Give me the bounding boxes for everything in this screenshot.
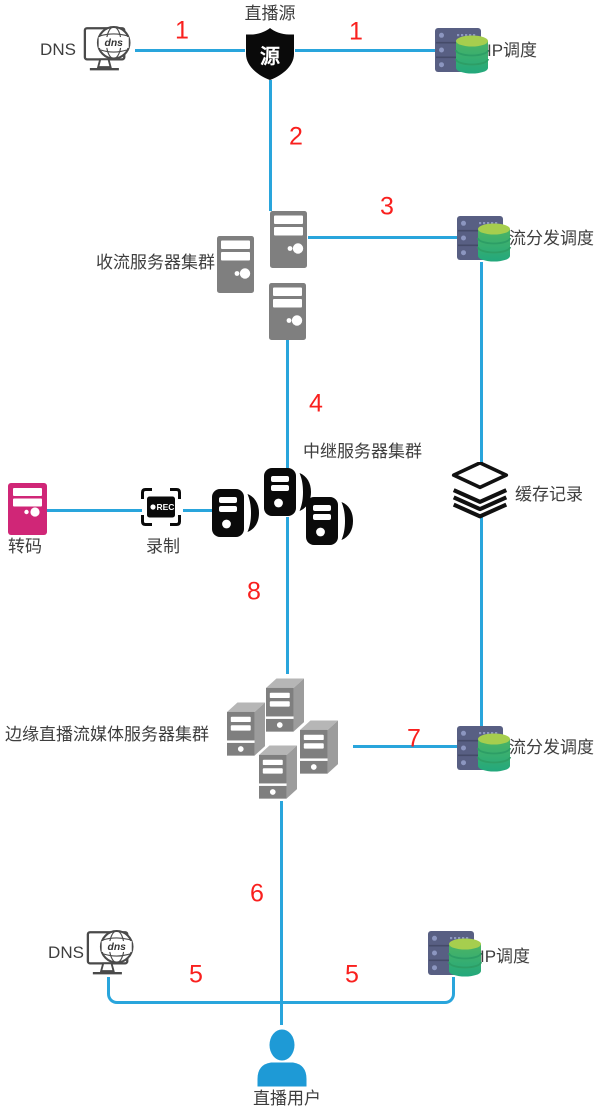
connector-source-to-ip [295, 49, 435, 52]
label-dns-top: DNS [40, 40, 76, 60]
label-cache: 缓存记录 [515, 485, 583, 505]
label-dispatch-bottom: 流分发调度 [509, 738, 594, 758]
label-ip-sched-top: IP调度 [487, 41, 537, 61]
step-label: 8 [247, 580, 261, 605]
connector-edge-to-dispatch-bottom [353, 745, 458, 748]
connector-transcode-to-record [40, 509, 142, 512]
record-icon-text: REC [157, 502, 175, 512]
step-label: 5 [189, 963, 203, 988]
label-live-user: 直播用户 [253, 1089, 321, 1109]
label-ip-sched-bottom: IP调度 [480, 947, 530, 967]
server-database-icon-ip-top [435, 28, 489, 78]
edge-server-icon [300, 718, 338, 778]
relay-server-icon [306, 495, 354, 547]
ingest-server-icon [270, 211, 307, 268]
label-record: 录制 [146, 537, 180, 557]
connector-source-to-ingest [269, 80, 272, 211]
step-label: 7 [407, 727, 421, 752]
step-label: 1 [349, 20, 363, 45]
label-ingest-cluster: 收流服务器集群 [96, 253, 215, 273]
label-edge-cluster: 边缘直播流媒体服务器集群 [5, 725, 209, 745]
step-label: 1 [175, 19, 189, 44]
ingest-server-icon [217, 236, 254, 293]
record-rec-icon: REC [141, 488, 181, 526]
dns-globe-icon [82, 22, 134, 78]
connector-cache-to-dispatch-bottom [480, 517, 483, 727]
connector-ingest-to-dispatch-top [308, 236, 458, 239]
step-label: 2 [289, 125, 303, 150]
label-transcode: 转码 [8, 537, 42, 557]
label-dns-bottom: DNS [48, 943, 84, 963]
connector-ingest-to-relay [286, 340, 289, 468]
diagram-canvas: dns [0, 0, 606, 1113]
relay-server-icon [264, 466, 312, 518]
connector-relay-to-edge [286, 517, 289, 674]
connector-dispatch-top-to-cache [480, 262, 483, 465]
label-dispatch-top: 流分发调度 [509, 229, 594, 249]
connector-user-dns-ip [107, 977, 455, 1004]
live-source-icon-text: 源 [260, 45, 280, 68]
step-label: 5 [345, 963, 359, 988]
edge-server-icon [259, 743, 297, 803]
transcode-server-icon [8, 483, 47, 535]
ingest-server-icon [269, 283, 306, 340]
server-database-icon-dispatch-top [457, 216, 511, 266]
step-label: 3 [380, 195, 394, 220]
live-user-icon [255, 1029, 309, 1087]
relay-server-icon [212, 487, 260, 539]
step-label: 6 [250, 882, 264, 907]
step-label: 4 [309, 392, 323, 417]
dns-globe-icon [85, 926, 137, 982]
label-live-source: 直播源 [245, 4, 296, 24]
connector-record-to-relay [183, 509, 213, 512]
server-database-icon-ip-bottom [428, 931, 482, 981]
live-source-shield-icon: 源 [245, 27, 295, 81]
edge-server-icon [266, 676, 304, 736]
server-database-icon-dispatch-bottom [457, 726, 511, 776]
cache-layers-icon [450, 462, 510, 520]
connector-dns-to-source [135, 49, 245, 52]
label-relay-cluster: 中继服务器集群 [303, 442, 422, 462]
